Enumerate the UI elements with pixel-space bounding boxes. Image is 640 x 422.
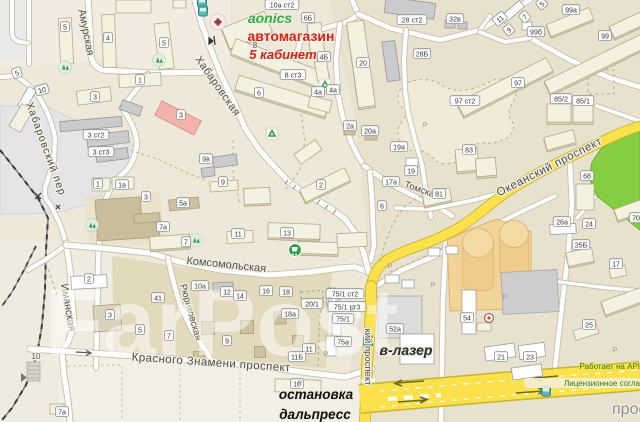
svg-text:3: 3 <box>179 112 183 120</box>
svg-text:Р: Р <box>431 282 435 289</box>
svg-text:26а: 26а <box>556 219 568 227</box>
svg-text:99б: 99б <box>530 29 542 37</box>
svg-text:2: 2 <box>319 182 323 190</box>
svg-text:Р: Р <box>503 294 507 301</box>
svg-text:11: 11 <box>234 231 241 239</box>
svg-text:Р: Р <box>324 351 328 358</box>
svg-text:14: 14 <box>236 293 244 301</box>
svg-text:99а: 99а <box>565 7 577 15</box>
svg-text:10а ст2: 10а ст2 <box>270 2 295 10</box>
svg-text:75/1: 75/1 <box>336 316 350 324</box>
svg-text:75/1 ст2: 75/1 ст2 <box>332 291 359 299</box>
svg-text:11: 11 <box>305 346 312 354</box>
svg-text:1в: 1в <box>118 182 126 190</box>
svg-text:85/2: 85/2 <box>554 96 568 104</box>
svg-text:Р: Р <box>328 297 332 304</box>
svg-text:5: 5 <box>162 40 166 48</box>
svg-text:18: 18 <box>282 289 290 297</box>
svg-text:в-лазер: в-лазер <box>380 342 433 358</box>
svg-text:Работает на API: Работает на API <box>580 362 640 371</box>
svg-text:11Б: 11Б <box>291 354 303 362</box>
svg-text:7: 7 <box>184 239 188 247</box>
svg-text:24: 24 <box>585 221 593 229</box>
svg-text:18а: 18а <box>284 311 296 319</box>
svg-text:2а: 2а <box>346 123 354 131</box>
svg-text:1: 1 <box>96 181 100 189</box>
svg-text:19: 19 <box>407 168 415 176</box>
svg-text:проспект: проспект <box>612 401 640 418</box>
svg-text:23: 23 <box>526 354 534 362</box>
svg-text:41: 41 <box>154 295 162 303</box>
svg-text:9в: 9в <box>202 156 210 164</box>
svg-text:7а: 7а <box>58 409 66 417</box>
svg-text:99: 99 <box>601 33 609 41</box>
svg-text:9: 9 <box>221 179 225 187</box>
svg-text:Р: Р <box>350 307 354 314</box>
svg-text:3: 3 <box>144 194 148 202</box>
svg-text:6: 6 <box>257 90 261 98</box>
svg-text:85/1: 85/1 <box>576 98 590 106</box>
svg-text:70: 70 <box>632 215 640 223</box>
svg-text:16: 16 <box>262 288 270 296</box>
svg-text:Лицензионное согла: Лицензионное согла <box>564 379 640 388</box>
svg-text:Р: Р <box>423 122 427 129</box>
svg-text:54: 54 <box>463 315 471 323</box>
svg-text:17: 17 <box>612 261 620 269</box>
svg-text:4: 4 <box>106 35 110 43</box>
svg-text:12: 12 <box>223 289 231 297</box>
svg-text:Р: Р <box>298 380 302 387</box>
svg-text:75а: 75а <box>337 339 349 347</box>
svg-text:Р: Р <box>613 347 617 354</box>
svg-text:32в: 32в <box>449 16 461 24</box>
svg-text:25Б: 25Б <box>575 242 588 250</box>
svg-text:97: 97 <box>514 80 522 88</box>
svg-text:4а: 4а <box>329 87 337 95</box>
svg-text:3 ст3: 3 ст3 <box>93 149 110 157</box>
svg-text:4Б: 4Б <box>320 54 329 62</box>
svg-text:28 ст2: 28 ст2 <box>402 17 423 25</box>
svg-text:9: 9 <box>225 338 229 346</box>
svg-text:4а: 4а <box>314 89 322 97</box>
svg-text:8 ст3: 8 ст3 <box>285 72 302 80</box>
svg-text:75/1 ст3: 75/1 ст3 <box>334 304 361 312</box>
svg-text:52а: 52а <box>389 326 401 334</box>
svg-text:21: 21 <box>497 354 505 362</box>
svg-text:17а: 17а <box>385 179 397 187</box>
svg-text:5: 5 <box>63 24 67 32</box>
svg-text:3: 3 <box>93 94 97 102</box>
svg-text:97 ст2: 97 ст2 <box>455 98 476 106</box>
svg-text:3: 3 <box>108 312 112 320</box>
svg-text:83: 83 <box>465 147 473 155</box>
svg-text:aonics: aonics <box>248 10 293 26</box>
svg-text:остановка: остановка <box>279 387 354 402</box>
svg-text:3 ст2: 3 ст2 <box>88 132 105 140</box>
svg-text:10: 10 <box>32 352 41 361</box>
svg-text:10а: 10а <box>194 283 206 291</box>
svg-text:13: 13 <box>283 230 291 238</box>
svg-text:6: 6 <box>380 203 384 211</box>
svg-text:7: 7 <box>167 333 171 341</box>
svg-text:Р: Р <box>388 263 392 270</box>
svg-text:дальпресс: дальпресс <box>279 407 351 422</box>
svg-text:7а: 7а <box>159 224 167 232</box>
svg-text:20/1: 20/1 <box>305 301 319 309</box>
svg-text:5 кабинет: 5 кабинет <box>249 47 317 62</box>
svg-text:25: 25 <box>585 322 593 330</box>
svg-text:19а: 19а <box>393 144 405 152</box>
svg-text:6Б: 6Б <box>304 15 313 23</box>
svg-text:20: 20 <box>359 60 367 68</box>
svg-text:2: 2 <box>87 276 91 284</box>
svg-text:68: 68 <box>583 173 591 181</box>
svg-text:28Б: 28Б <box>416 51 429 59</box>
svg-text:5: 5 <box>138 327 142 335</box>
svg-text:автомагазин: автомагазин <box>247 28 334 44</box>
svg-text:1: 1 <box>138 77 142 85</box>
svg-text:20а: 20а <box>364 128 376 136</box>
svg-text:5а: 5а <box>179 200 187 208</box>
svg-text:81: 81 <box>435 191 443 199</box>
